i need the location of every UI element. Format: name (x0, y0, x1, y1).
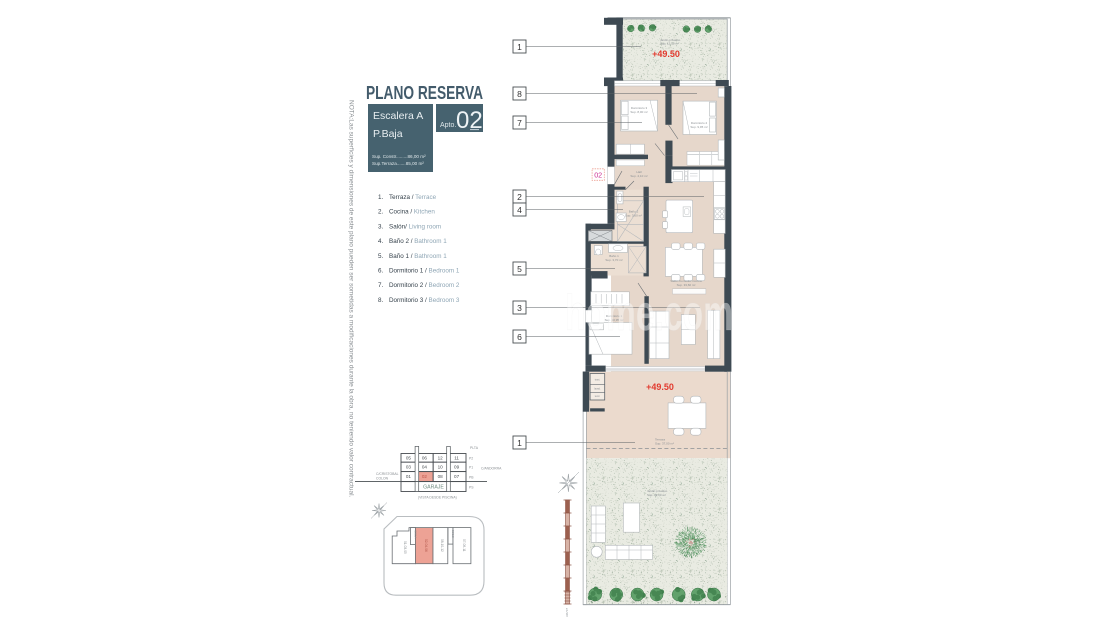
svg-text:02-04-06: 02-04-06 (424, 539, 428, 552)
svg-text:5: 5 (517, 264, 522, 274)
svg-text:12: 12 (438, 456, 444, 461)
svg-text:C/CRISTOBAL: C/CRISTOBAL (376, 472, 399, 476)
svg-text:3.: 3. (378, 223, 384, 230)
svg-text:lavad.: lavad. (594, 387, 601, 390)
svg-text:Sup. 3,70 m²: Sup. 3,70 m² (605, 258, 622, 262)
svg-text:07: 07 (454, 474, 460, 479)
svg-text:home.com: home.com (565, 285, 733, 341)
svg-text:PLANO RESERVA: PLANO RESERVA (366, 82, 483, 103)
svg-text:1: 1 (517, 438, 522, 448)
svg-text:Sup. 8,00 m²: Sup. 8,00 m² (630, 110, 647, 114)
svg-text:09: 09 (454, 465, 460, 470)
svg-text:Salón/ Living room: Salón/ Living room (389, 223, 441, 230)
svg-text:PLTA: PLTA (470, 446, 479, 450)
svg-text:02: 02 (422, 474, 428, 479)
svg-text:Sup. 37,00 m²: Sup. 37,00 m² (655, 441, 674, 445)
svg-text:+49.50: +49.50 (646, 382, 674, 392)
svg-text:08-10-12: 08-10-12 (440, 539, 444, 552)
svg-text:08: 08 (438, 474, 444, 479)
svg-text:2: 2 (517, 192, 522, 202)
svg-text:Cocina / Kitchen: Cocina / Kitchen (389, 209, 435, 216)
svg-text:01-03-05: 01-03-05 (403, 541, 407, 554)
svg-text:Sup. 3,60 m²: Sup. 3,60 m² (625, 213, 642, 217)
svg-text:P.Baja: P.Baja (373, 128, 403, 140)
svg-text:Sup. 49,00 m²: Sup. 49,00 m² (647, 493, 666, 497)
svg-text:ESC.B: ESC.B (451, 530, 455, 538)
svg-text:PB: PB (469, 476, 474, 480)
svg-text:Sup.Terraza.......85,00 m²: Sup.Terraza.......85,00 m² (372, 161, 424, 166)
svg-text:e:1/100: e:1/100 (565, 608, 569, 617)
svg-text:06: 06 (422, 456, 428, 461)
svg-text:Baño 2 / Bathroom 1: Baño 2 / Bathroom 1 (389, 238, 447, 245)
svg-text:P2: P2 (469, 457, 473, 461)
svg-text:GARAJE: GARAJE (423, 484, 444, 490)
svg-text:01: 01 (406, 474, 412, 479)
svg-text:P1: P1 (469, 466, 473, 470)
svg-text:7: 7 (517, 118, 522, 128)
svg-text:5.: 5. (378, 253, 384, 260)
svg-text:NOTA:Las superficies y dimensi: NOTA:Las superficies y dimensiones de es… (348, 100, 355, 498)
svg-text:Sup. Constr.........86,00 m²: Sup. Constr.........86,00 m² (372, 154, 426, 159)
svg-text:Sup. 9,95 m²: Sup. 9,95 m² (690, 125, 707, 129)
svg-text:1: 1 (517, 42, 522, 52)
svg-text:COLON: COLON (376, 477, 389, 481)
svg-text:Escalera A: Escalera A (373, 110, 423, 122)
svg-text:03: 03 (406, 465, 412, 470)
svg-text:Sup. 4,10 m²: Sup. 4,10 m² (630, 174, 647, 178)
svg-text:6: 6 (517, 332, 522, 342)
svg-text:4.: 4. (378, 238, 384, 245)
svg-text:4: 4 (517, 205, 522, 215)
svg-text:Dormitorio 3 / Bedroom 3: Dormitorio 3 / Bedroom 3 (389, 297, 460, 304)
svg-text:04: 04 (422, 465, 428, 470)
svg-text:trast.: trast. (595, 378, 601, 381)
svg-text:Sup. 12,00 m²: Sup. 12,00 m² (660, 42, 679, 46)
svg-text:02: 02 (594, 170, 602, 179)
svg-text:05: 05 (406, 456, 412, 461)
svg-text:6.: 6. (378, 268, 384, 275)
svg-text:8.: 8. (378, 297, 384, 304)
svg-text:07-09-11: 07-09-11 (462, 539, 466, 552)
svg-text:+49.50: +49.50 (652, 49, 680, 59)
svg-text:Baño 1 / Bathroom 1: Baño 1 / Bathroom 1 (389, 253, 447, 260)
svg-text:3: 3 (517, 303, 522, 313)
svg-text:Terraza / Terrace: Terraza / Terrace (389, 194, 437, 201)
svg-text:PS: PS (469, 486, 474, 490)
svg-text:tend.: tend. (595, 395, 601, 398)
svg-text:Dormitorio 1 / Bedroom 1: Dormitorio 1 / Bedroom 1 (389, 268, 460, 275)
svg-text:1.: 1. (378, 194, 384, 201)
svg-text:10: 10 (438, 465, 444, 470)
svg-text:C/ANDORRA: C/ANDORRA (481, 467, 502, 471)
svg-text:8: 8 (517, 89, 522, 99)
svg-text:ESC.A: ESC.A (414, 531, 418, 539)
svg-text:(VISTA DESDE PISCINA): (VISTA DESDE PISCINA) (418, 496, 457, 500)
svg-text:11: 11 (454, 456, 459, 461)
svg-text:7.: 7. (378, 282, 384, 289)
svg-text:Apto.: Apto. (440, 122, 456, 129)
svg-text:Dormitorio 2 / Bedroom 2: Dormitorio 2 / Bedroom 2 (389, 282, 460, 289)
svg-text:2.: 2. (378, 209, 384, 216)
